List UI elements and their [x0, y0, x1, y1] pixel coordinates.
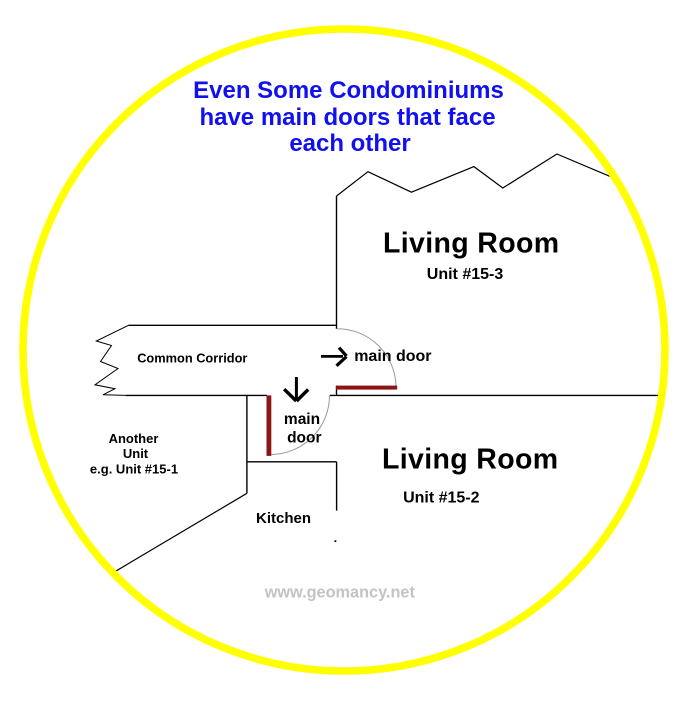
- svg-text:door: door: [287, 430, 321, 447]
- svg-text:have main doors that face: have main doors that face: [199, 104, 495, 131]
- svg-text:e.g. Unit #15-1: e.g. Unit #15-1: [90, 462, 178, 477]
- svg-text:Living Room: Living Room: [382, 444, 558, 476]
- svg-text:Unit #15-3: Unit #15-3: [427, 266, 504, 283]
- svg-text:each other: each other: [289, 130, 410, 157]
- svg-text:Unit #15-2: Unit #15-2: [403, 489, 480, 506]
- svg-text:Common Corridor: Common Corridor: [137, 351, 247, 366]
- svg-text:Living Room: Living Room: [383, 228, 559, 260]
- svg-text:www.geomancy.net: www.geomancy.net: [264, 584, 416, 602]
- svg-text:Kitchen: Kitchen: [256, 510, 311, 527]
- svg-text:main: main: [284, 411, 320, 428]
- svg-text:Another: Another: [109, 431, 159, 446]
- svg-text:Unit: Unit: [123, 446, 149, 461]
- svg-text:main door: main door: [354, 348, 431, 365]
- svg-text:Even Some Condominiums: Even Some Condominiums: [193, 77, 504, 104]
